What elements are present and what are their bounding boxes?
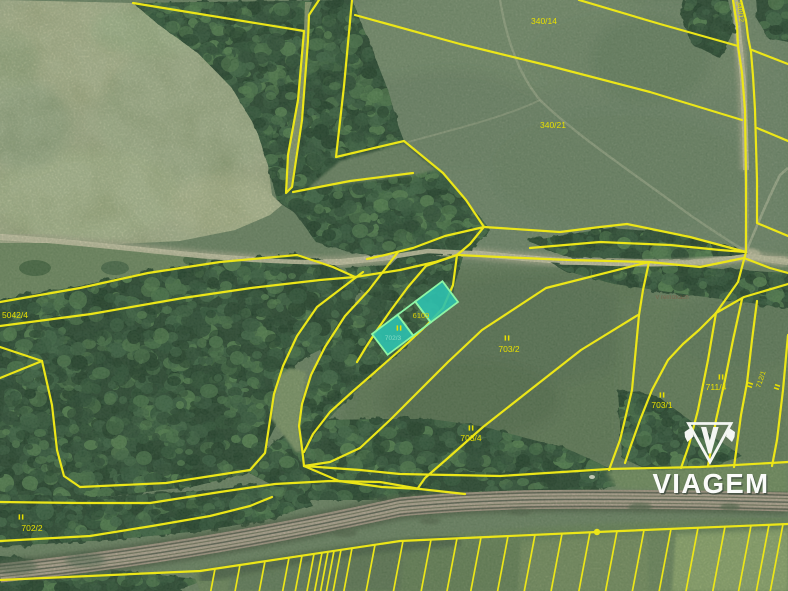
svg-text:702/3: 702/3 bbox=[385, 335, 402, 342]
svg-text:5042/4: 5042/4 bbox=[2, 310, 28, 320]
svg-text:VIAGEM: VIAGEM bbox=[653, 468, 770, 499]
svg-text:703/4: 703/4 bbox=[460, 433, 482, 443]
svg-text:340/14: 340/14 bbox=[531, 16, 557, 26]
svg-text:340/21: 340/21 bbox=[540, 120, 566, 130]
svg-text:V remízkách: V remízkách bbox=[655, 295, 688, 301]
svg-text:702/2: 702/2 bbox=[21, 523, 43, 533]
svg-text:703/2: 703/2 bbox=[498, 344, 520, 354]
svg-text:711/4: 711/4 bbox=[706, 382, 727, 392]
svg-text:703/1: 703/1 bbox=[651, 400, 673, 410]
svg-text:6109: 6109 bbox=[413, 311, 430, 320]
